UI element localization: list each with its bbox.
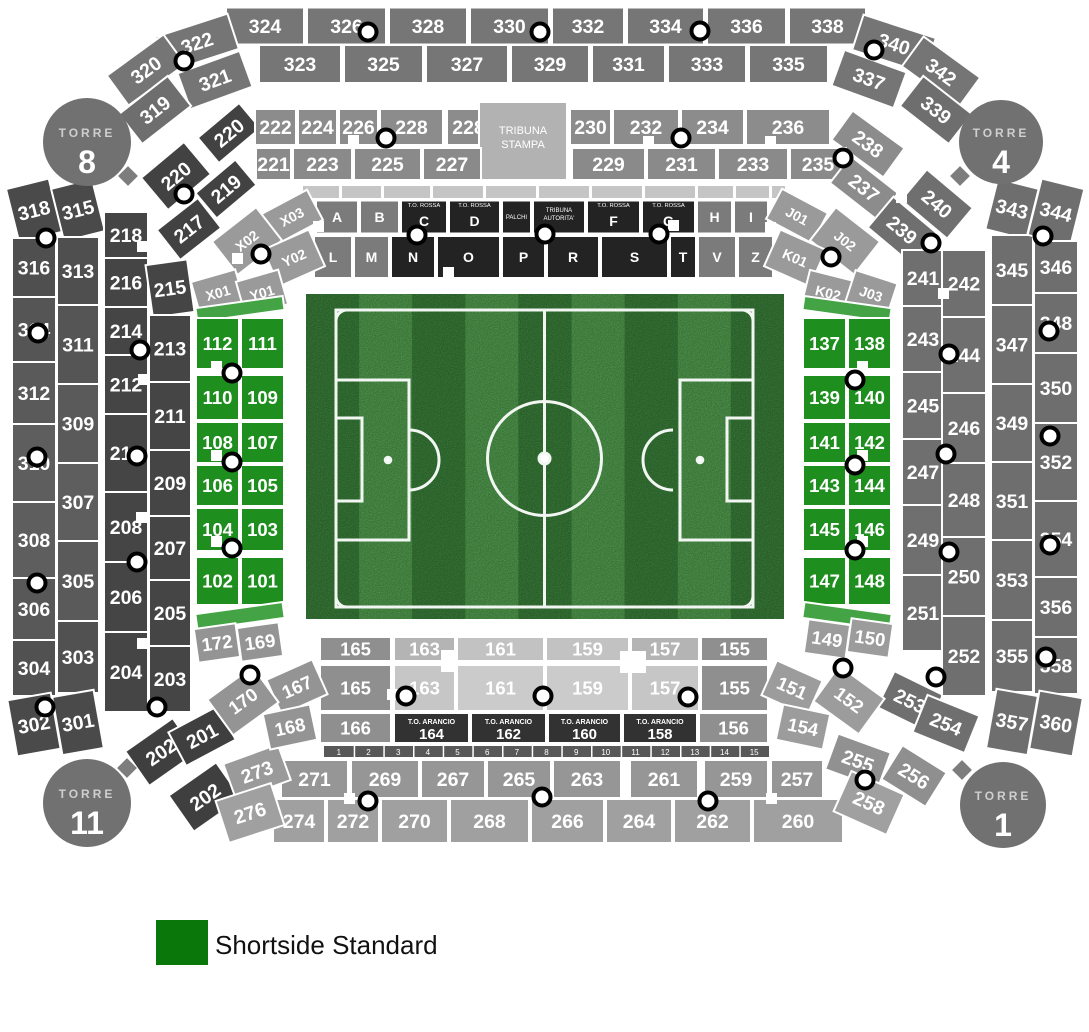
svg-text:250: 250 [948,566,981,588]
svg-text:V: V [712,249,722,265]
svg-text:8: 8 [78,144,96,180]
svg-text:166: 166 [340,717,371,738]
svg-text:350: 350 [1040,378,1073,400]
svg-text:221: 221 [257,154,290,176]
svg-text:14: 14 [720,748,729,757]
svg-text:S: S [630,249,639,265]
svg-text:266: 266 [551,811,584,833]
svg-text:142: 142 [854,432,885,453]
svg-text:138: 138 [854,333,885,354]
svg-text:169: 169 [243,629,276,654]
svg-text:260: 260 [782,811,815,833]
svg-text:103: 103 [247,519,278,540]
svg-text:157: 157 [650,638,681,659]
svg-text:227: 227 [436,154,469,176]
svg-text:347: 347 [996,334,1029,356]
svg-text:335: 335 [772,54,805,76]
svg-text:356: 356 [1040,597,1073,619]
svg-text:T.O. ROSSA: T.O. ROSSA [408,203,441,209]
svg-text:12: 12 [661,748,670,757]
svg-text:N: N [408,249,418,265]
svg-text:313: 313 [62,261,95,283]
svg-text:159: 159 [572,638,603,659]
svg-text:316: 316 [18,257,51,279]
svg-text:245: 245 [907,395,940,417]
svg-text:304: 304 [18,658,51,680]
svg-text:228: 228 [395,117,428,139]
svg-text:327: 327 [451,54,484,76]
svg-text:147: 147 [809,570,840,591]
svg-text:307: 307 [62,492,95,514]
svg-text:306: 306 [18,599,51,621]
svg-text:149: 149 [810,626,843,651]
svg-text:230: 230 [574,117,607,139]
svg-text:105: 105 [247,475,278,496]
svg-text:336: 336 [730,16,763,38]
svg-text:353: 353 [996,570,1029,592]
svg-text:272: 272 [337,811,370,833]
svg-text:109: 109 [247,387,278,408]
svg-text:144: 144 [854,475,886,496]
svg-text:B: B [374,209,384,225]
svg-text:156: 156 [718,717,749,738]
svg-text:249: 249 [907,530,940,552]
svg-text:160: 160 [572,726,597,743]
svg-text:311: 311 [62,334,94,356]
svg-text:H: H [709,209,719,225]
svg-text:209: 209 [154,473,187,495]
svg-text:324: 324 [249,16,282,38]
svg-text:159: 159 [572,677,603,698]
svg-text:351: 351 [996,491,1029,513]
svg-text:328: 328 [412,16,445,38]
svg-text:Shortside Standard: Shortside Standard [215,930,438,960]
svg-text:269: 269 [369,769,402,791]
svg-text:231: 231 [665,154,698,176]
svg-text:T.O. ARANCIO: T.O. ARANCIO [636,719,684,726]
svg-text:139: 139 [809,387,840,408]
svg-text:102: 102 [202,570,233,591]
svg-text:262: 262 [696,811,729,833]
svg-text:241: 241 [907,268,940,290]
svg-text:207: 207 [154,538,187,560]
svg-text:263: 263 [571,769,604,791]
svg-text:268: 268 [473,811,506,833]
svg-text:222: 222 [259,117,292,139]
svg-text:11: 11 [70,805,104,841]
svg-text:155: 155 [719,677,750,698]
svg-text:312: 312 [18,383,51,405]
svg-text:7: 7 [515,748,520,757]
svg-text:248: 248 [948,490,981,512]
svg-text:251: 251 [907,603,940,625]
svg-text:157: 157 [650,677,681,698]
svg-text:261: 261 [648,769,681,791]
svg-text:212: 212 [110,374,143,396]
svg-text:TORRE: TORRE [59,787,116,801]
svg-text:303: 303 [62,647,95,669]
svg-text:T.O. ARANCIO: T.O. ARANCIO [485,719,533,726]
svg-text:235: 235 [802,154,835,176]
svg-text:PALCHI: PALCHI [506,215,528,221]
svg-text:M: M [366,249,378,265]
svg-text:270: 270 [398,811,431,833]
svg-text:265: 265 [503,769,536,791]
svg-text:305: 305 [62,571,95,593]
svg-text:155: 155 [719,638,750,659]
svg-text:243: 243 [907,329,940,351]
svg-text:TRIBUNA: TRIBUNA [546,208,572,214]
svg-text:137: 137 [809,333,840,354]
svg-text:233: 233 [737,154,770,176]
svg-text:145: 145 [809,519,840,540]
svg-text:274: 274 [283,811,316,833]
svg-text:345: 345 [996,260,1029,282]
svg-text:225: 225 [371,154,404,176]
svg-text:143: 143 [809,475,840,496]
svg-text:206: 206 [110,587,143,609]
svg-text:267: 267 [437,769,470,791]
svg-text:213: 213 [154,338,187,360]
svg-text:107: 107 [247,432,278,453]
svg-text:Z: Z [751,249,760,265]
svg-text:161: 161 [485,638,516,659]
svg-text:338: 338 [811,16,844,38]
svg-text:TORRE: TORRE [59,126,116,140]
svg-text:205: 205 [154,603,187,625]
svg-text:2: 2 [366,748,371,757]
svg-text:271: 271 [298,769,331,791]
svg-text:234: 234 [696,117,729,139]
svg-text:TRIBUNA: TRIBUNA [499,125,548,137]
svg-text:349: 349 [996,413,1029,435]
svg-text:161: 161 [485,677,516,698]
svg-text:214: 214 [110,321,143,343]
svg-text:325: 325 [367,54,400,76]
svg-text:163: 163 [409,638,440,659]
svg-text:4: 4 [426,748,431,757]
svg-text:141: 141 [809,432,840,453]
svg-text:13: 13 [690,748,699,757]
svg-text:140: 140 [854,387,885,408]
svg-text:330: 330 [493,16,526,38]
svg-text:F: F [609,213,618,229]
svg-text:11: 11 [631,748,640,757]
svg-text:333: 333 [691,54,724,76]
svg-text:TORRE: TORRE [973,126,1030,140]
svg-text:T.O. ROSSA: T.O. ROSSA [597,203,630,209]
svg-text:T.O. ROSSA: T.O. ROSSA [458,203,491,209]
svg-text:309: 309 [62,413,95,435]
svg-text:1: 1 [337,748,342,757]
svg-text:346: 346 [1040,257,1073,279]
svg-text:308: 308 [18,530,51,552]
svg-text:15: 15 [750,748,759,757]
svg-text:T.O. ARANCIO: T.O. ARANCIO [408,719,456,726]
svg-text:229: 229 [592,154,625,176]
svg-text:L: L [329,249,338,265]
svg-text:I: I [749,209,753,225]
svg-text:1: 1 [994,807,1012,843]
svg-text:158: 158 [647,726,672,743]
svg-text:A: A [332,209,342,225]
svg-text:334: 334 [649,16,682,38]
svg-text:111: 111 [248,333,277,354]
svg-text:216: 216 [110,272,143,294]
svg-text:165: 165 [340,638,371,659]
svg-text:259: 259 [720,769,753,791]
svg-text:204: 204 [110,662,143,684]
svg-text:101: 101 [247,570,278,591]
svg-text:203: 203 [154,669,187,691]
svg-text:252: 252 [948,646,981,668]
svg-text:STAMPA: STAMPA [501,139,545,151]
svg-text:355: 355 [996,646,1029,668]
svg-text:165: 165 [340,677,371,698]
svg-text:P: P [519,249,528,265]
svg-text:106: 106 [202,475,233,496]
svg-text:164: 164 [419,726,445,743]
svg-text:T.O. ROSSA: T.O. ROSSA [652,203,685,209]
svg-text:150: 150 [853,625,886,650]
svg-text:D: D [469,213,479,229]
svg-text:224: 224 [301,117,334,139]
svg-text:108: 108 [202,432,233,453]
svg-text:223: 223 [306,154,339,176]
svg-text:246: 246 [948,418,981,440]
svg-text:6: 6 [485,748,490,757]
svg-text:4: 4 [992,144,1010,180]
svg-text:329: 329 [534,54,567,76]
svg-text:9: 9 [574,748,579,757]
svg-text:352: 352 [1040,452,1073,474]
svg-text:10: 10 [601,748,610,757]
svg-text:T: T [679,249,688,265]
svg-text:AUTORITA': AUTORITA' [544,216,575,222]
svg-text:257: 257 [781,769,814,791]
svg-text:162: 162 [496,726,521,743]
svg-text:332: 332 [572,16,605,38]
svg-text:236: 236 [772,117,805,139]
svg-text:112: 112 [203,333,233,354]
svg-text:O: O [463,249,474,265]
svg-text:5: 5 [455,748,460,757]
svg-text:215: 215 [152,276,187,302]
svg-text:110: 110 [203,387,233,408]
svg-text:247: 247 [907,462,940,484]
svg-text:3: 3 [396,748,401,757]
svg-text:323: 323 [284,54,317,76]
svg-text:211: 211 [154,406,186,428]
svg-text:232: 232 [630,117,663,139]
svg-text:242: 242 [948,273,981,295]
svg-text:172: 172 [200,630,233,655]
svg-text:T.O. ARANCIO: T.O. ARANCIO [561,719,609,726]
svg-text:331: 331 [612,54,645,76]
svg-text:148: 148 [854,570,885,591]
svg-text:8: 8 [544,748,549,757]
svg-text:TORRE: TORRE [975,789,1032,803]
svg-text:R: R [568,249,578,265]
svg-text:264: 264 [623,811,656,833]
